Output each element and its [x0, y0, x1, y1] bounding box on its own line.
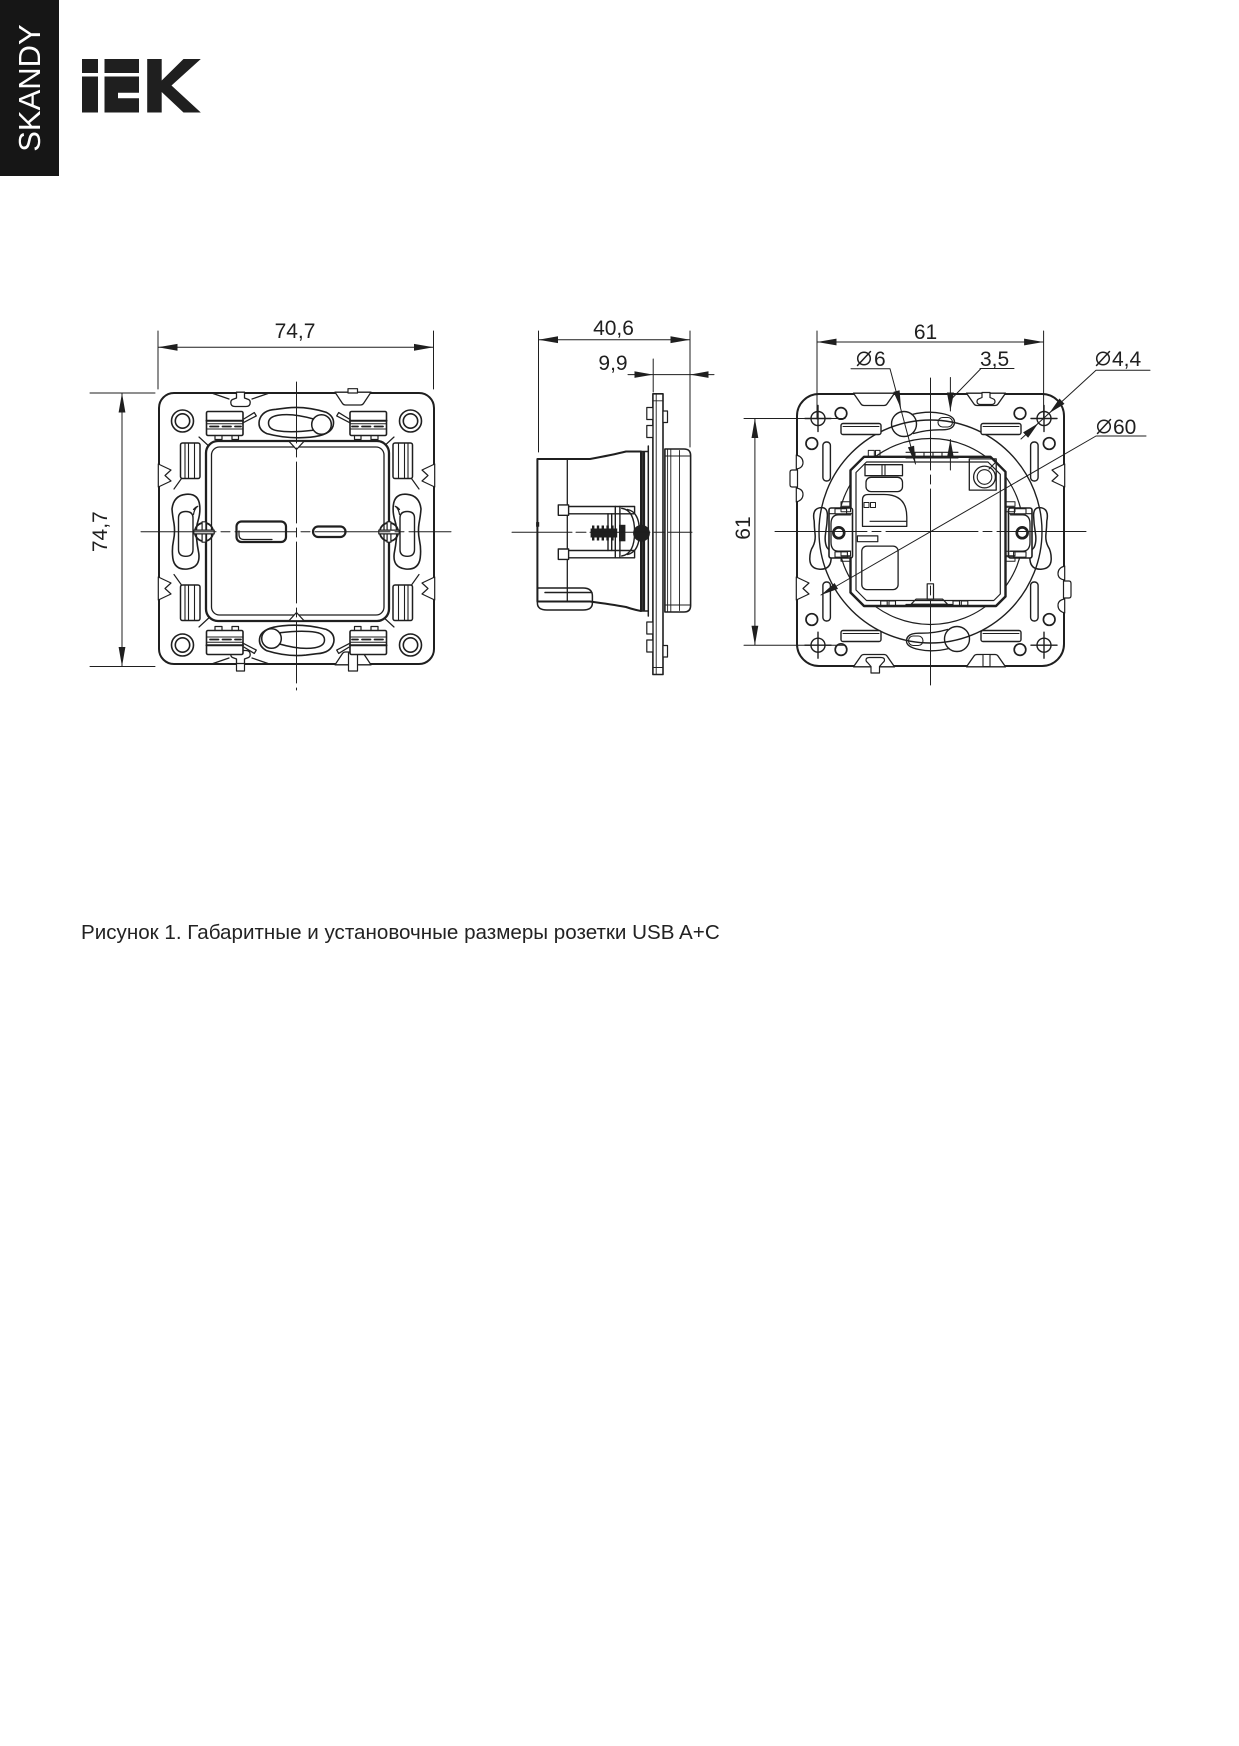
- svg-text:74,7: 74,7: [275, 320, 316, 343]
- svg-text:74,7: 74,7: [89, 511, 112, 552]
- svg-text:61: 61: [914, 321, 937, 344]
- svg-text:4,4: 4,4: [1112, 348, 1142, 371]
- svg-text:61: 61: [732, 516, 755, 539]
- svg-text:3,5: 3,5: [980, 348, 1009, 371]
- svg-text:6: 6: [874, 348, 886, 371]
- svg-text:40,6: 40,6: [593, 317, 634, 340]
- svg-text:9,9: 9,9: [598, 352, 627, 375]
